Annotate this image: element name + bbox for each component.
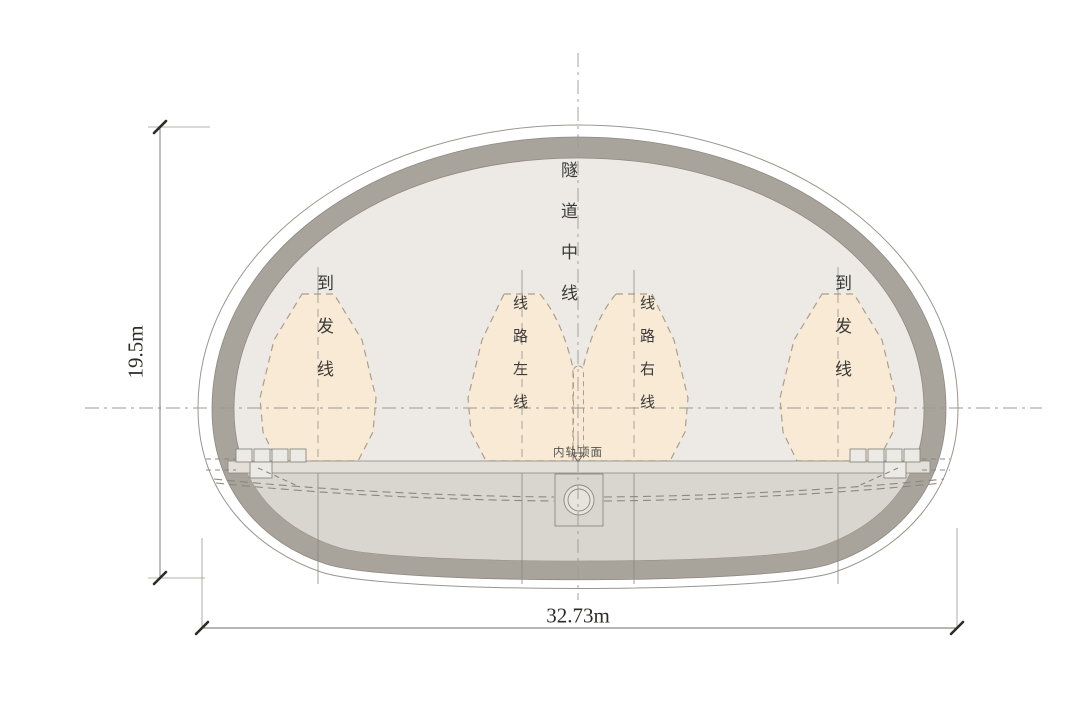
cable-trough: [904, 449, 920, 462]
arrival-departure-right-label: 到发线: [829, 274, 854, 403]
inner-rail-top-label: 内轨顶面: [540, 444, 616, 460]
main-line-left-label: 线路左线: [509, 295, 530, 427]
dimension-height: [148, 121, 210, 584]
height-dimension-value: 19.5m: [124, 325, 149, 378]
cable-trough-box: [884, 462, 906, 478]
cable-trough: [290, 449, 306, 462]
track-slab: [228, 461, 930, 473]
cable-trough: [236, 449, 252, 462]
cable-trough: [254, 449, 270, 462]
drain-pipe-circle-inner: [568, 489, 590, 511]
arrival-departure-left-label: 到发线: [311, 274, 336, 403]
cable-trough: [886, 449, 902, 462]
tunnel-centerline-label: 隧道中线: [555, 161, 580, 325]
cable-trough: [850, 449, 866, 462]
width-dimension-value: 32.73m: [546, 604, 610, 629]
cable-trough: [868, 449, 884, 462]
diagram-linework: [0, 0, 1085, 711]
cable-trough-box: [250, 462, 272, 478]
main-line-right-label: 线路右线: [636, 295, 657, 427]
central-drain: [555, 474, 603, 526]
tunnel-cross-section-diagram: 隧道中线 到发线 线路左线 线路右线 到发线 内轨顶面 19.5m 32.73m: [0, 0, 1085, 711]
cable-trough: [272, 449, 288, 462]
